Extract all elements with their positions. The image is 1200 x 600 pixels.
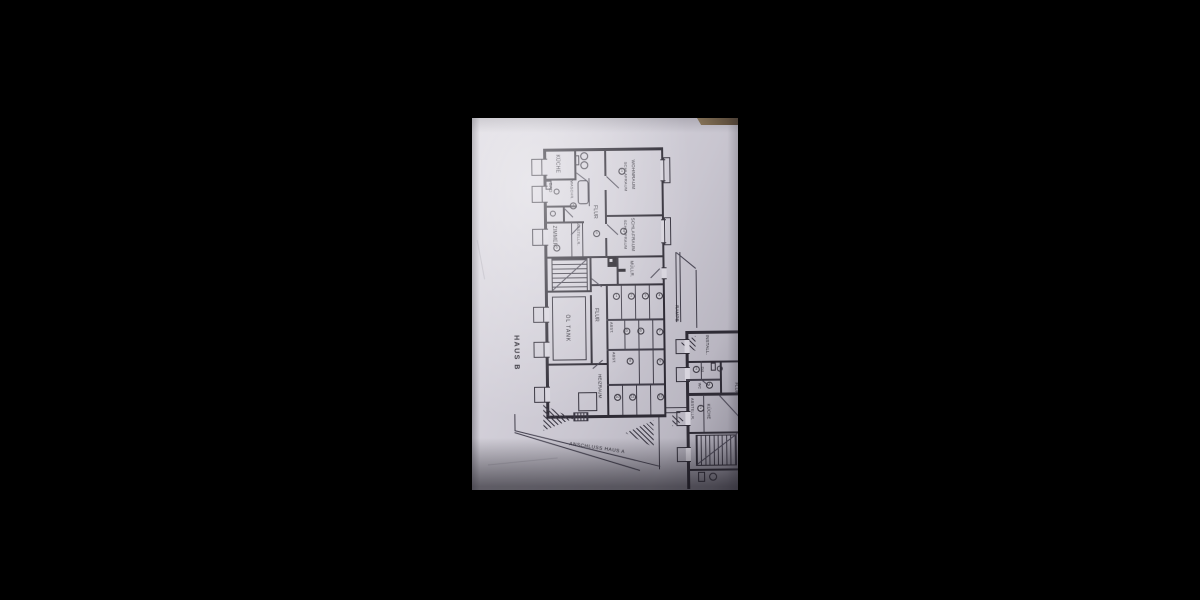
floorplan-paper-photo: KÜCHE BAD WASCHR. 7 ZIMMER 6 ABSTELLR. F… — [472, 118, 738, 490]
room-label-abstellraum: ABSTELLR. — [575, 223, 579, 245]
cell-number-badge: 11 — [629, 394, 636, 401]
wall — [590, 295, 593, 365]
wall — [703, 395, 705, 432]
window — [684, 339, 689, 354]
wall — [661, 147, 667, 417]
sink — [717, 366, 723, 372]
wall — [581, 222, 583, 256]
annotation-anschluss: ANSCHLUSS HAUS A — [569, 443, 625, 456]
light-well — [533, 342, 544, 358]
chimney-flue — [609, 259, 612, 262]
cell-divider — [639, 350, 640, 384]
wall — [686, 392, 738, 395]
cell-number-badge: 9 — [657, 358, 664, 365]
light-well — [534, 387, 545, 403]
toilet — [550, 211, 556, 217]
room-label-wohnraum-sub: SCHLAFRAUM — [623, 162, 627, 192]
ramp-edge — [696, 270, 698, 328]
room-label-du: DU — [700, 367, 704, 373]
room-number-badge: 6 — [553, 245, 560, 252]
cell-divider — [635, 286, 636, 319]
window — [542, 159, 547, 176]
room-label-flur-a: FLUR — [734, 382, 738, 394]
door-leaf — [606, 176, 619, 188]
toilet — [709, 473, 717, 481]
door-leaf — [719, 395, 738, 418]
room-label-abst: ABST. — [611, 352, 615, 364]
room-label-install: INSTALL. — [704, 335, 709, 355]
boundary-line — [658, 417, 660, 469]
cell-divider — [621, 286, 622, 319]
window — [545, 387, 550, 403]
stove-burner — [580, 152, 588, 160]
cell-divider — [649, 285, 650, 318]
cell-number-badge: 7 — [656, 328, 663, 335]
wall — [605, 190, 607, 224]
room-label-muellraum: MÜLLR. — [629, 261, 633, 278]
room-label-waschraum: WASCHR. — [568, 180, 572, 199]
cell-divider — [636, 385, 637, 415]
room-label-abstellraum-a: ABSTELLR. — [689, 398, 693, 420]
window — [544, 342, 549, 358]
window — [686, 447, 691, 462]
wall — [589, 257, 591, 290]
cell-number-badge: 2 — [628, 293, 635, 300]
door-leaf — [607, 224, 619, 235]
plan-title: HAUS B — [512, 335, 519, 371]
boundary-line — [514, 414, 515, 431]
light-well — [532, 229, 543, 246]
room-label-schlafraum-sub: SCHLAFRAUM — [623, 220, 627, 250]
wall — [616, 257, 618, 285]
wall — [571, 222, 573, 256]
floorplan-drawing: KÜCHE BAD WASCHR. 7 ZIMMER 6 ABSTELLR. F… — [472, 118, 738, 490]
wall — [607, 214, 662, 216]
cell-number-badge: 8 — [627, 358, 634, 365]
cell-number-badge: 3 — [642, 292, 649, 299]
wall — [687, 468, 738, 471]
room-number-badge: 7 — [570, 202, 577, 209]
wall — [605, 238, 607, 257]
cell-divider — [622, 385, 623, 415]
paper-crease — [477, 240, 485, 279]
room-label-zimmer: ZIMMER — [551, 226, 556, 247]
window-sill — [663, 157, 670, 183]
wall — [545, 290, 592, 292]
room-label-wc: WC — [697, 383, 701, 389]
exterior-stair-hatch — [543, 404, 573, 430]
room-label-flur-og: FLUR — [592, 205, 597, 219]
cell-number-badge: 1 — [613, 293, 620, 300]
window — [544, 307, 549, 323]
cell-number-badge: 10 — [614, 394, 621, 401]
wall — [685, 330, 738, 333]
light-well — [531, 159, 542, 176]
light-well — [532, 186, 543, 203]
ramp-edge — [679, 252, 681, 322]
room-label-kueche-a: KÜCHE — [706, 404, 710, 420]
room-label-abst: ABST. — [608, 322, 612, 334]
photo-viewer-stage: KÜCHE BAD WASCHR. 7 ZIMMER 6 ABSTELLR. F… — [0, 0, 1200, 600]
shower — [711, 363, 716, 371]
cell-number-badge: 6 — [637, 328, 644, 335]
cell-divider — [653, 349, 654, 383]
room-label-oeltank: ÖL TANK — [564, 314, 569, 342]
room-label-schlafraum: SCHLAFRAUM — [630, 218, 635, 252]
toilet — [554, 189, 560, 195]
cell-number-badge: 5 — [623, 328, 630, 335]
cell-number-badge: 12 — [657, 393, 664, 400]
furnace — [578, 392, 597, 411]
room-label-wohnraum: WOHNRAUM — [630, 160, 635, 190]
room-number-badge: 5 — [593, 230, 600, 237]
cell-number-badge: 4 — [656, 292, 663, 299]
cell-divider — [650, 384, 651, 414]
grate — [573, 412, 588, 421]
window — [543, 229, 548, 246]
window-sill — [664, 217, 671, 245]
light-well — [533, 307, 544, 323]
room-label-heizraum: HEIZRAUM — [597, 374, 602, 399]
wall — [604, 148, 606, 176]
room-label-kueche: KÜCHE — [554, 155, 559, 174]
exterior-stair-hatch — [625, 420, 653, 447]
chimney — [619, 269, 626, 272]
door-opening — [661, 267, 666, 279]
room-label-flur-kg: FLUR — [593, 308, 598, 322]
door-leaf — [650, 268, 660, 278]
paper-crease — [488, 457, 558, 465]
sink — [698, 472, 705, 482]
wall — [607, 348, 664, 350]
wall — [588, 178, 590, 206]
kitchen-counter — [575, 155, 579, 165]
room-label-bad: BAD — [548, 183, 553, 193]
room-number-badge: 2 — [697, 405, 704, 412]
walkway-line — [666, 407, 686, 408]
wall — [606, 284, 610, 418]
cell-divider — [652, 319, 653, 348]
label-rampe: RAMPE — [674, 305, 679, 322]
bathtub — [577, 180, 588, 204]
stove-burner — [580, 161, 588, 169]
